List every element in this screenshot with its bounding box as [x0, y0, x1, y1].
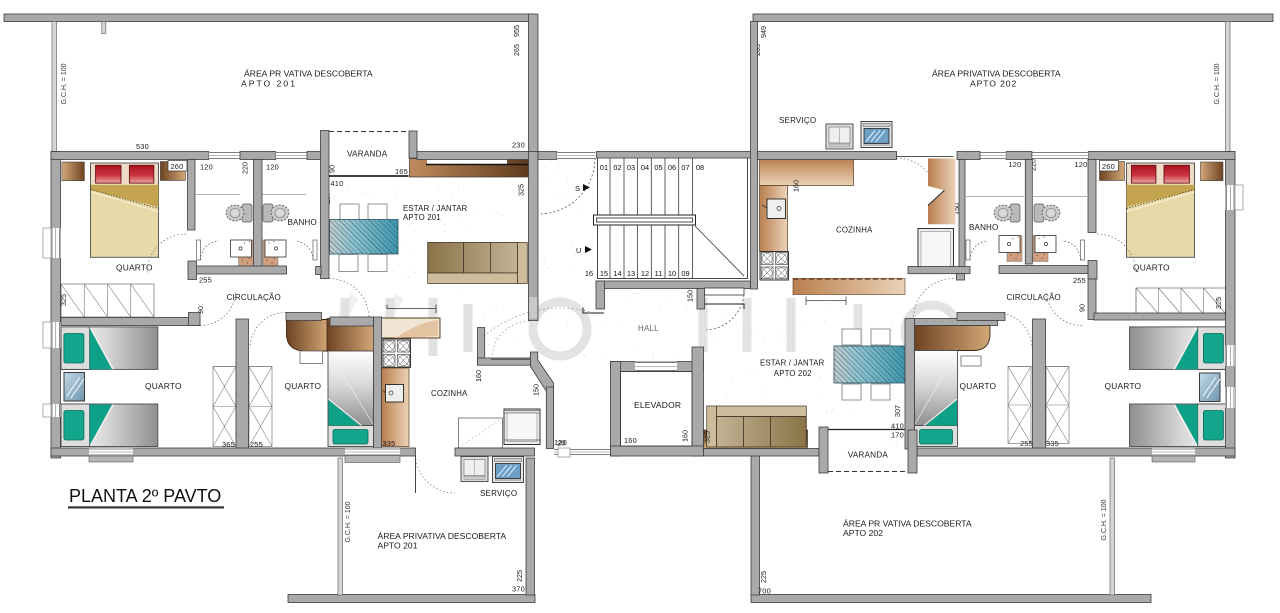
svg-text:14: 14	[613, 269, 621, 278]
svg-text:VARANDA: VARANDA	[848, 451, 889, 460]
svg-text:QUARTO: QUARTO	[145, 381, 182, 391]
svg-text:307: 307	[893, 405, 902, 417]
svg-text:255: 255	[1073, 276, 1086, 285]
svg-text:955: 955	[512, 25, 521, 37]
svg-text:700: 700	[758, 587, 771, 596]
svg-text:SERVIÇO: SERVIÇO	[779, 116, 816, 125]
svg-text:12: 12	[641, 269, 649, 278]
svg-text:G.C.H. = 100: G.C.H. = 100	[345, 501, 352, 542]
svg-text:230: 230	[512, 141, 525, 150]
svg-text:S: S	[575, 184, 580, 193]
svg-text:APTO 201: APTO 201	[403, 213, 441, 222]
svg-text:20: 20	[557, 439, 566, 448]
svg-text:15: 15	[600, 269, 608, 278]
svg-text:160: 160	[681, 430, 690, 442]
svg-text:410: 410	[891, 422, 904, 431]
svg-text:120: 120	[200, 163, 213, 172]
svg-text:160: 160	[792, 180, 801, 192]
svg-text:ESTAR / JANTAR: ESTAR / JANTAR	[760, 359, 825, 368]
svg-text:QUARTO: QUARTO	[1105, 381, 1142, 391]
svg-text:ÁREA PRIVATIVA DESCOBERTA: ÁREA PRIVATIVA DESCOBERTA	[932, 68, 1061, 78]
svg-text:G.C.H. = 100: G.C.H. = 100	[1214, 63, 1221, 104]
svg-text:08: 08	[696, 163, 704, 172]
svg-text:325: 325	[703, 431, 712, 443]
svg-text:530: 530	[136, 142, 149, 151]
svg-text:170: 170	[891, 431, 904, 440]
svg-text:04: 04	[641, 163, 649, 172]
svg-text:120: 120	[1075, 160, 1088, 169]
svg-text:SERVIÇO: SERVIÇO	[480, 489, 517, 498]
svg-text:370: 370	[512, 585, 525, 594]
svg-text:COZINHA: COZINHA	[836, 225, 873, 234]
svg-text:325: 325	[1214, 297, 1223, 309]
svg-text:APTO 202: APTO 202	[774, 369, 812, 378]
svg-text:BANHO: BANHO	[288, 218, 317, 227]
svg-text:ÁREA PR VATIVA DESCOBERTA: ÁREA PR VATIVA DESCOBERTA	[843, 519, 972, 529]
svg-text:165: 165	[395, 167, 408, 176]
svg-text:225: 225	[515, 570, 524, 582]
svg-text:CIRCULAÇÃO: CIRCULAÇÃO	[227, 293, 281, 302]
svg-text:BANHO: BANHO	[969, 223, 998, 232]
svg-text:225: 225	[759, 571, 768, 583]
svg-text:01: 01	[600, 163, 608, 172]
svg-text:APTO 201: APTO 201	[378, 540, 418, 550]
svg-text:160: 160	[474, 370, 483, 382]
svg-text:02: 02	[613, 163, 621, 172]
svg-text:CIRCULAÇÃO: CIRCULAÇÃO	[1007, 293, 1061, 302]
svg-text:255: 255	[199, 276, 212, 285]
svg-text:160: 160	[624, 436, 637, 445]
svg-text:07: 07	[681, 163, 689, 172]
svg-text:265: 265	[512, 44, 521, 56]
svg-text:150: 150	[532, 384, 541, 396]
svg-text:03: 03	[627, 163, 635, 172]
svg-text:11: 11	[655, 269, 663, 278]
svg-text:G.C.H. = 100: G.C.H. = 100	[61, 63, 68, 104]
svg-text:ÁREA PRIVATIVA DESCOBERTA: ÁREA PRIVATIVA DESCOBERTA	[378, 531, 507, 541]
svg-text:ÁREA PR VATIVA DESCOBERTA: ÁREA PR VATIVA DESCOBERTA	[244, 68, 373, 78]
svg-text:05: 05	[654, 163, 662, 172]
svg-text:ESTAR / JANTAR: ESTAR / JANTAR	[403, 204, 468, 213]
svg-text:09: 09	[681, 269, 689, 278]
svg-text:APTO 202: APTO 202	[970, 78, 1017, 88]
svg-text:16: 16	[585, 269, 593, 278]
svg-text:90: 90	[1078, 304, 1087, 312]
svg-text:G.C.H. = 100: G.C.H. = 100	[1101, 499, 1108, 540]
svg-text:120: 120	[266, 163, 279, 172]
svg-text:13: 13	[627, 269, 635, 278]
svg-text:HALL: HALL	[638, 324, 659, 333]
svg-text:10: 10	[668, 269, 676, 278]
svg-text:APTO 202: APTO 202	[843, 528, 883, 538]
svg-text:06: 06	[668, 163, 676, 172]
svg-text:255: 255	[1020, 439, 1033, 448]
svg-text:150: 150	[686, 290, 695, 302]
svg-text:335: 335	[383, 439, 396, 448]
svg-text:325: 325	[517, 184, 526, 196]
svg-text:ELEVADOR: ELEVADOR	[634, 400, 681, 410]
svg-text:VARANDA: VARANDA	[347, 149, 388, 158]
svg-text:949: 949	[759, 26, 768, 38]
svg-text:220: 220	[241, 162, 250, 174]
svg-text:QUARTO: QUARTO	[1133, 263, 1170, 273]
svg-text:260: 260	[1102, 162, 1115, 171]
svg-text:260: 260	[171, 162, 184, 171]
svg-text:COZINHA: COZINHA	[431, 389, 468, 398]
svg-text:QUARTO: QUARTO	[285, 381, 322, 391]
svg-text:U: U	[576, 246, 581, 255]
svg-text:335: 335	[1046, 439, 1059, 448]
svg-text:QUARTO: QUARTO	[960, 381, 997, 391]
svg-text:410: 410	[331, 179, 344, 188]
svg-text:120: 120	[1009, 160, 1022, 169]
svg-text:APTO 201: APTO 201	[241, 78, 297, 88]
svg-text:PLANTA 2º PAVTO: PLANTA 2º PAVTO	[69, 486, 221, 506]
